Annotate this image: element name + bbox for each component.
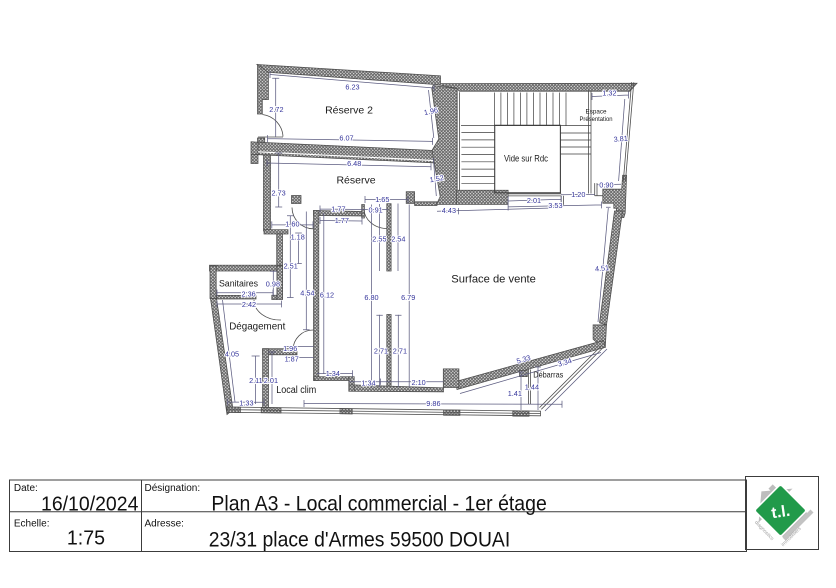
svg-text:Vide sur Rdc: Vide sur Rdc	[504, 154, 548, 165]
svg-text:6.07: 6.07	[339, 134, 353, 143]
svg-text:4.54: 4.54	[300, 288, 314, 297]
svg-text:Date:: Date:	[14, 483, 38, 494]
svg-text:Débarras: Débarras	[533, 370, 563, 379]
svg-text:3.53: 3.53	[548, 201, 562, 210]
svg-text:1.77: 1.77	[331, 204, 345, 213]
svg-text:t.l.: t.l.	[770, 503, 791, 522]
svg-text:1.77: 1.77	[335, 216, 349, 225]
svg-text:1.96: 1.96	[283, 344, 297, 353]
svg-text:6.80: 6.80	[364, 293, 378, 302]
svg-text:1.34: 1.34	[326, 369, 340, 378]
svg-text:Sanitaires: Sanitaires	[219, 278, 259, 288]
svg-text:23/31 place d'Armes 59500 DOUA: 23/31 place d'Armes 59500 DOUAI	[209, 528, 510, 552]
svg-text:6.23: 6.23	[345, 82, 359, 91]
svg-text:2.73: 2.73	[271, 189, 285, 198]
svg-text:Adresse:: Adresse:	[145, 518, 184, 529]
svg-text:4.43: 4.43	[442, 206, 456, 215]
svg-text:2.01: 2.01	[264, 376, 278, 385]
svg-text:2.55: 2.55	[372, 235, 386, 244]
svg-text:Local clim: Local clim	[276, 385, 316, 396]
svg-text:Désignation:: Désignation:	[145, 483, 201, 494]
svg-text:6.12: 6.12	[320, 291, 334, 300]
svg-text:Espace: Espace	[586, 109, 608, 116]
svg-text:Echelle:: Echelle:	[14, 518, 50, 529]
svg-text:2.10: 2.10	[411, 378, 425, 387]
svg-text:1.20: 1.20	[571, 190, 585, 199]
svg-text:1:75: 1:75	[67, 527, 105, 549]
svg-text:Surface de vente: Surface de vente	[451, 273, 536, 285]
svg-text:2.51: 2.51	[284, 261, 298, 270]
svg-text:1.87: 1.87	[285, 355, 299, 364]
svg-text:2.72: 2.72	[269, 105, 283, 114]
svg-text:1.65: 1.65	[375, 195, 389, 204]
svg-text:9.86: 9.86	[426, 399, 440, 408]
svg-text:2.71: 2.71	[374, 346, 388, 355]
svg-text:1.18: 1.18	[291, 233, 305, 242]
svg-text:0.91: 0.91	[368, 205, 382, 214]
svg-text:0.90: 0.90	[599, 180, 613, 189]
svg-text:2.54: 2.54	[391, 235, 405, 244]
svg-text:0.98: 0.98	[266, 280, 280, 289]
svg-text:4.05: 4.05	[225, 349, 239, 358]
svg-text:1.60: 1.60	[285, 220, 299, 229]
svg-text:6.79: 6.79	[401, 293, 415, 302]
svg-text:2.42: 2.42	[242, 300, 256, 309]
svg-text:Réserve: Réserve	[336, 175, 375, 187]
svg-text:1.44: 1.44	[525, 383, 539, 392]
svg-text:Présentation: Présentation	[580, 116, 614, 123]
svg-text:16/10/2024: 16/10/2024	[41, 493, 138, 515]
svg-text:2.11: 2.11	[249, 376, 263, 385]
svg-text:1.34: 1.34	[361, 379, 375, 388]
svg-text:3.81: 3.81	[613, 134, 628, 144]
svg-text:4.51: 4.51	[594, 263, 609, 273]
svg-text:Réserve 2: Réserve 2	[325, 104, 373, 116]
svg-text:2.36: 2.36	[241, 289, 255, 298]
svg-text:1.33: 1.33	[239, 398, 253, 407]
svg-text:6.48: 6.48	[347, 159, 361, 168]
svg-text:2.71: 2.71	[393, 346, 407, 355]
svg-text:Plan A3 - Local commercial - 1: Plan A3 - Local commercial - 1er étage	[211, 491, 546, 515]
svg-text:1.32: 1.32	[602, 88, 616, 97]
svg-text:Dégagement: Dégagement	[229, 322, 285, 333]
svg-text:1.41: 1.41	[508, 389, 522, 398]
svg-text:2.01: 2.01	[527, 196, 541, 205]
